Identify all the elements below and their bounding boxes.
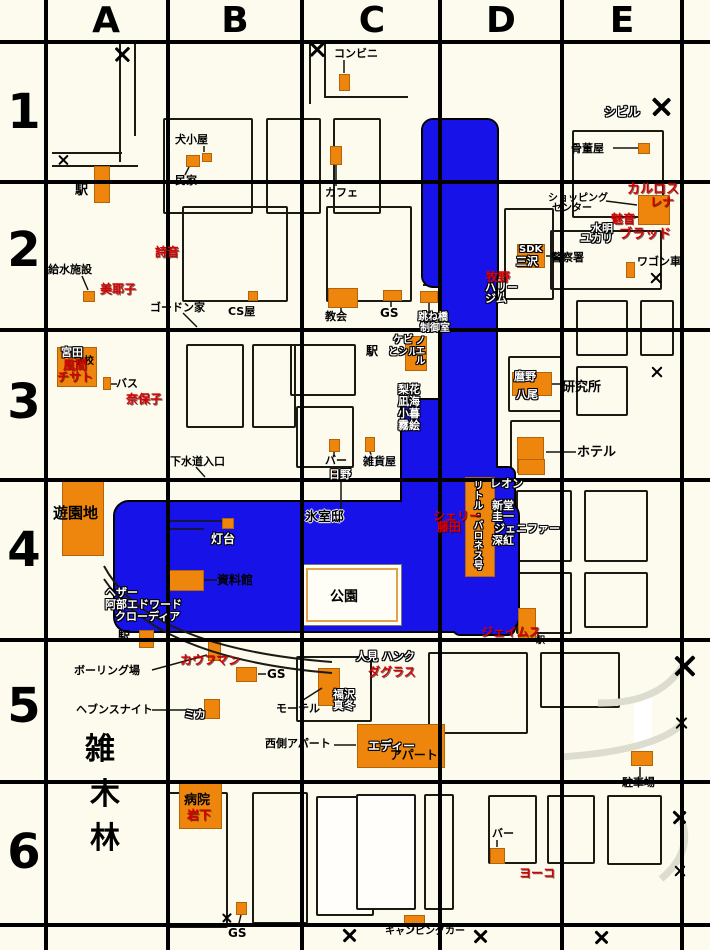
map-label: ジェイムス <box>481 626 541 638</box>
map-label: ワゴン車 <box>637 256 681 267</box>
x-mark <box>652 97 672 117</box>
col-header-e: E <box>602 0 642 41</box>
map-label: レオン <box>490 478 523 489</box>
map-label: 圭一 <box>492 511 514 522</box>
map-label: GS <box>228 927 247 939</box>
grid-line-horizontal <box>0 328 710 332</box>
map-label: カフェ <box>325 187 358 198</box>
map-label: クローディア <box>115 611 180 622</box>
map-label: 宮田 <box>61 347 83 358</box>
map-label: ノエル <box>413 335 423 365</box>
map-label: ヘザー <box>105 587 138 598</box>
map-label: 奈保子 <box>126 393 162 405</box>
map-label: 木 <box>90 780 120 810</box>
map-label: バー <box>325 455 347 466</box>
x-mark <box>58 155 69 166</box>
map-label: 骨董屋 <box>571 143 604 154</box>
grid-line-vertical <box>44 0 48 950</box>
x-mark <box>309 41 325 57</box>
col-header-d: D <box>481 0 521 41</box>
map-label: SDK <box>519 245 542 255</box>
map-label: 魅音 <box>611 213 635 225</box>
map-label: 岩下 <box>187 809 211 821</box>
map-label: キャンピングカー <box>385 927 465 937</box>
x-mark <box>676 717 689 730</box>
x-mark <box>650 272 662 284</box>
row-header-6: 6 <box>4 824 44 880</box>
map-label: バー <box>492 828 514 839</box>
x-mark <box>595 930 610 945</box>
map-label: レナ <box>650 196 674 208</box>
map-label: 遊園地 <box>53 506 98 521</box>
x-mark <box>673 810 688 825</box>
map-label: 小暮 <box>398 408 420 419</box>
row-header-1: 1 <box>4 84 44 140</box>
x-mark <box>222 913 232 923</box>
map-label: コンビニ <box>334 48 378 59</box>
map-label: 給水施設 <box>48 264 92 275</box>
map-label: 八尾 <box>516 389 538 400</box>
map-label: 凪海 <box>398 396 420 407</box>
map-label: ミカ <box>184 709 206 720</box>
map-label: 深紅 <box>492 535 514 546</box>
map-label: 藤田 <box>437 521 461 533</box>
map-label: リトル・バロネス号 <box>471 480 481 570</box>
grid-line-vertical <box>166 0 170 950</box>
map-label: 詩音 <box>155 246 179 258</box>
grid-line-horizontal <box>0 638 710 642</box>
map-label: カウフマン <box>180 654 240 666</box>
map-label: 阿部エドワード <box>105 599 182 610</box>
map-label: ケビ <box>393 336 413 346</box>
map-label: 氷室邸 <box>305 511 344 524</box>
x-mark <box>674 655 696 677</box>
map-label: バス <box>116 378 138 389</box>
grid-line-vertical <box>300 0 304 950</box>
map-label: ゴードン家 <box>150 302 205 313</box>
col-header-a: A <box>86 0 126 41</box>
map-label: 麿野 <box>514 371 536 382</box>
map-label: 研究所 <box>562 381 601 394</box>
map-label: 警察署 <box>551 252 584 263</box>
map-label: 駅 <box>118 630 130 642</box>
map-label: 霧絵 <box>398 420 420 431</box>
map-label: GS <box>380 307 399 319</box>
grid-line-vertical <box>438 0 442 950</box>
map-label: アパート <box>390 749 438 761</box>
map-label: 民家 <box>175 175 197 186</box>
map-label: ボーリング場 <box>74 665 140 676</box>
map-label: ダグラス <box>368 666 416 678</box>
map-label: ヨーコ <box>519 867 555 879</box>
col-header-c: C <box>352 0 392 41</box>
map-label: ホテル <box>577 446 616 459</box>
grid-line-horizontal <box>0 180 710 184</box>
grid-line-horizontal <box>0 923 710 927</box>
map-label: GS <box>267 668 286 680</box>
city-map: ABCDE123456コンビニ犬小屋民家駅シビル骨董屋カフェカルロスレナショッピ… <box>0 0 710 950</box>
row-header-2: 2 <box>4 222 44 278</box>
map-label: 跳ね橋 <box>418 313 448 323</box>
map-label: モーテル <box>276 703 320 714</box>
map-label: 教会 <box>325 311 347 322</box>
map-label: 公園 <box>330 590 358 604</box>
map-label: 駅 <box>366 345 378 357</box>
map-label: ブラッド <box>619 228 671 241</box>
map-label: 下水道入口 <box>170 456 225 467</box>
row-header-5: 5 <box>4 678 44 734</box>
x-mark <box>651 366 663 378</box>
map-label: 病院 <box>184 794 210 807</box>
x-mark <box>114 46 130 62</box>
map-label: 美耶子 <box>100 283 136 295</box>
x-mark <box>474 929 489 944</box>
map-label: ヘブンスナイト <box>76 704 153 715</box>
map-label: 制御室 <box>420 324 450 334</box>
map-label: 犬小屋 <box>175 134 208 145</box>
map-label: 梨花 <box>398 384 420 395</box>
map-label: センター <box>552 204 592 214</box>
grid-line-horizontal <box>0 478 710 482</box>
map-label: 駐車場 <box>622 777 655 788</box>
map-label: 駅 <box>536 637 545 646</box>
map-label: チサト <box>57 371 93 383</box>
map-label: ジム <box>485 293 507 304</box>
row-header-3: 3 <box>4 374 44 430</box>
map-label: 雑 <box>85 735 115 765</box>
map-label: 日野 <box>329 469 351 480</box>
map-label: 駅 <box>75 184 88 197</box>
map-label: 資料館 <box>217 574 253 586</box>
grid-line-vertical <box>560 0 564 950</box>
map-label: 灯台 <box>211 533 235 545</box>
map-label: 人見 ハンク <box>356 651 415 662</box>
map-label: 三沢 <box>516 256 538 267</box>
map-label: 真冬 <box>333 700 355 711</box>
row-header-4: 4 <box>4 522 44 578</box>
map-label: ユカリ <box>580 233 613 244</box>
map-label: CS屋 <box>228 306 255 317</box>
map-label: 雑貨屋 <box>363 456 396 467</box>
map-label: 林 <box>90 824 120 854</box>
col-header-b: B <box>215 0 255 41</box>
map-label: ジェニファー <box>494 523 560 534</box>
map-label: シビル <box>604 106 640 118</box>
x-mark <box>343 928 358 943</box>
map-label: 西側アパート <box>265 738 331 749</box>
grid-line-vertical <box>680 0 684 950</box>
x-mark <box>674 865 686 877</box>
